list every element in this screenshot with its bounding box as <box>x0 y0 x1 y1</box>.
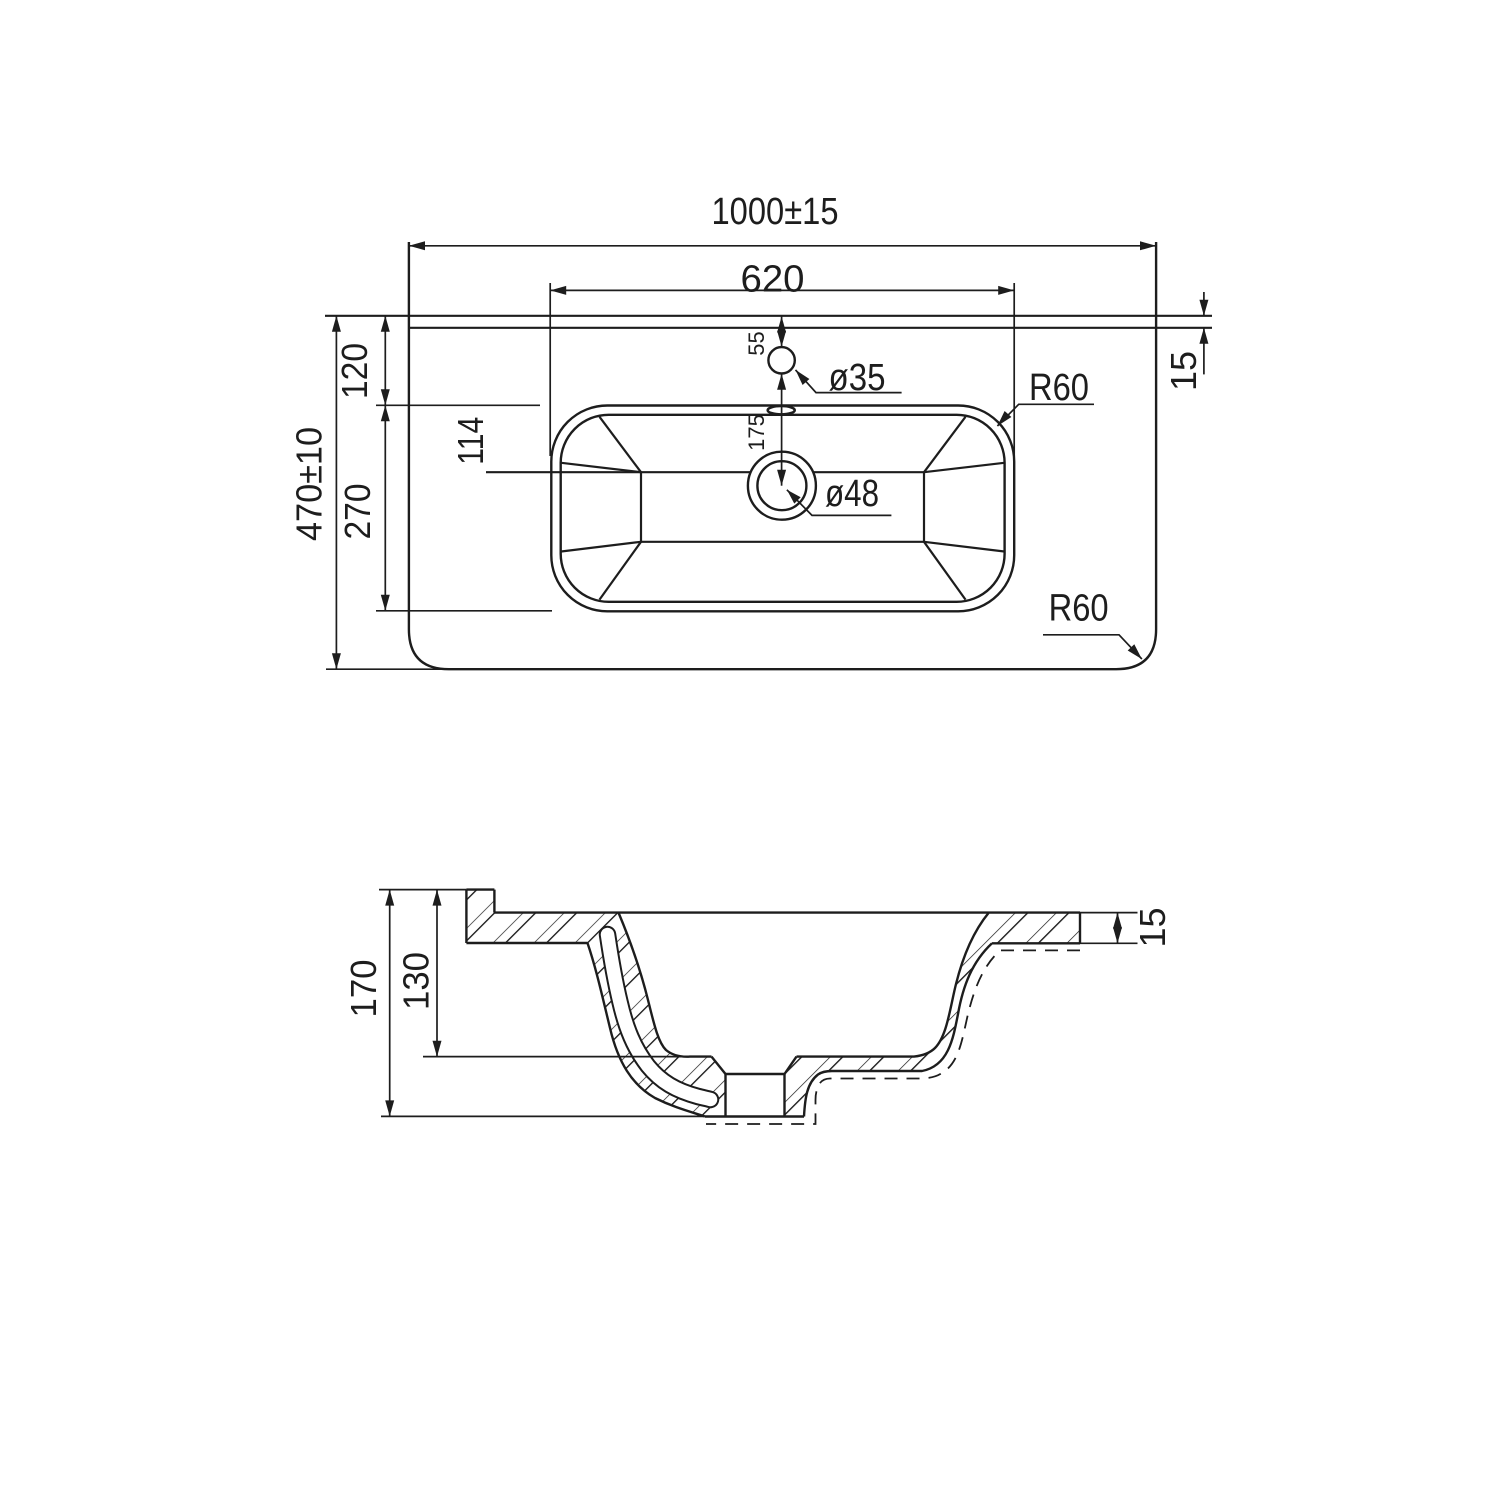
svg-text:270: 270 <box>337 484 378 540</box>
svg-text:620: 620 <box>741 258 805 300</box>
svg-text:470±10: 470±10 <box>289 427 330 541</box>
svg-text:170: 170 <box>343 960 384 1018</box>
svg-text:55: 55 <box>744 331 769 355</box>
svg-text:130: 130 <box>396 952 437 1010</box>
svg-text:1000±15: 1000±15 <box>712 191 839 233</box>
svg-text:15: 15 <box>1163 351 1204 391</box>
svg-text:114: 114 <box>450 417 491 465</box>
svg-text:175: 175 <box>744 414 769 451</box>
svg-text:R60: R60 <box>1049 588 1109 630</box>
svg-text:15: 15 <box>1132 907 1173 947</box>
svg-text:R60: R60 <box>1029 367 1089 409</box>
svg-text:ø35: ø35 <box>829 357 886 399</box>
svg-text:ø48: ø48 <box>825 473 879 515</box>
svg-text:120: 120 <box>334 343 375 399</box>
